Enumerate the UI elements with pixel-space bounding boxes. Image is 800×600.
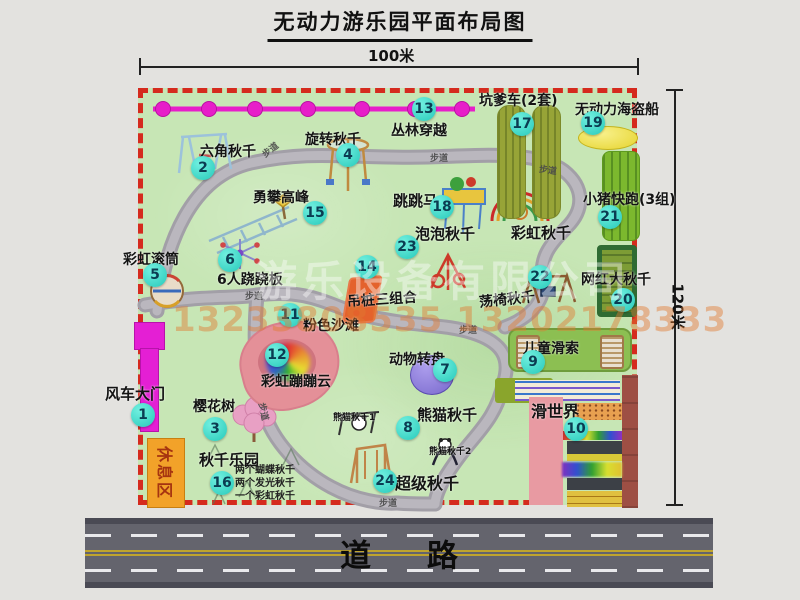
marker-7: 7 (433, 358, 457, 382)
label-piggy-run: 小猪快跑(3组) (583, 189, 676, 209)
windmill-gate-top (135, 323, 164, 349)
marker-11: 11 (278, 303, 302, 327)
marker-2: 2 (191, 156, 215, 180)
label-super-swing: 超级秋千 (395, 470, 459, 494)
slide-world-complex (495, 375, 638, 508)
label-climbing-peak: 勇攀高峰 (253, 187, 309, 207)
marker-5: 5 (143, 263, 167, 287)
note-line: 两个发光秋千 (235, 477, 295, 490)
note-line: 一个彩虹秋千 (235, 490, 295, 503)
road: 道路 (85, 518, 713, 588)
walkway-label: 步道 (379, 496, 397, 509)
label-cherry-tree: 樱花树 (193, 396, 235, 416)
dimension-line-top (140, 66, 638, 68)
park-map: 休息区 步道 步道 步道 步道 步道 步道 步道 风车大门 六 (138, 88, 637, 505)
marker-1: 1 (131, 403, 155, 427)
walkway-label: 步道 (245, 289, 263, 302)
marker-6: 6 (218, 248, 242, 272)
marker-8: 8 (396, 416, 420, 440)
dimension-tick-right-bottom (666, 504, 683, 506)
park-layout-page: 无动力游乐园平面布局图 100米 120米 (0, 0, 800, 600)
dimension-label-height: 120米 (668, 283, 689, 329)
walkway-label: 步道 (430, 151, 448, 164)
label-big-swing: 网红大秋千 (581, 269, 651, 289)
marker-22: 22 (528, 265, 552, 289)
bubble-swing-icon (431, 255, 465, 290)
marker-18: 18 (430, 195, 454, 219)
walkway-label: 步道 (538, 162, 558, 177)
label-rainbow-swing: 彩虹秋千 (511, 222, 571, 243)
dimension-label-width: 100米 (368, 45, 414, 66)
marker-17: 17 (510, 112, 534, 136)
ladder-icon (600, 335, 624, 369)
rest-area-label: 休息区 (154, 446, 178, 500)
dimension-tick-right-top (666, 89, 683, 91)
note-line: 两个蝴蝶秋千 (235, 464, 295, 477)
swing-paradise-notes: 两个蝴蝶秋千 两个发光秋千 一个彩虹秋千 (235, 464, 295, 503)
label-panda-swing-1: 熊猫秋千1 (333, 410, 375, 423)
page-title: 无动力游乐园平面布局图 (268, 6, 533, 42)
rest-area-box: 休息区 (147, 438, 185, 508)
marker-21: 21 (598, 205, 622, 229)
marker-24: 24 (373, 469, 397, 493)
label-jungle-crossing: 丛林穿越 (391, 120, 447, 140)
road-label: 道路 (284, 531, 513, 576)
label-pit-bike: 坑爹车(2套) (479, 90, 558, 110)
marker-15: 15 (303, 201, 327, 225)
marker-14: 14 (355, 255, 379, 279)
marker-10: 10 (564, 417, 588, 441)
marker-4: 4 (336, 143, 360, 167)
marker-20: 20 (611, 288, 635, 312)
walkway-label: 步道 (459, 323, 477, 336)
marker-23: 23 (395, 235, 419, 259)
marker-12: 12 (265, 343, 289, 367)
marker-13: 13 (412, 97, 436, 121)
label-windmill-gate: 风车大门 (105, 383, 165, 404)
dimension-tick-top-left (139, 58, 141, 75)
label-panda-swing-2: 熊猫秋千2 (429, 444, 471, 457)
marker-3: 3 (203, 417, 227, 441)
dimension-tick-top-right (637, 58, 639, 75)
marker-9: 9 (521, 350, 545, 374)
label-panda-swing: 熊猫秋千 (417, 404, 477, 425)
label-bubble-swing: 泡泡秋千 (415, 223, 475, 244)
label-pink-beach: 粉色沙滩 (303, 315, 359, 335)
marker-19: 19 (581, 111, 605, 135)
label-seesaw: 6人跷跷板 (217, 269, 283, 289)
label-bounce-cloud: 彩虹蹦蹦云 (261, 371, 331, 391)
marker-16: 16 (210, 471, 234, 495)
